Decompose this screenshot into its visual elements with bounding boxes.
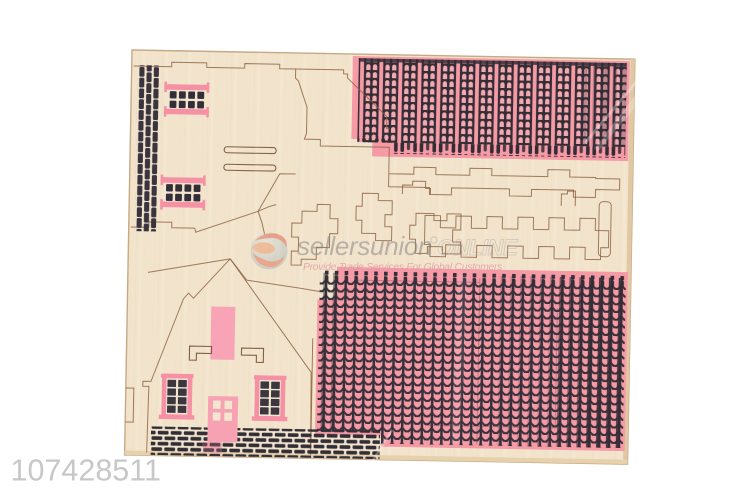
svg-text:Provide Trade Services For Glo: Provide Trade Services For Global Custom…: [303, 262, 502, 273]
svg-text:107428511: 107428511: [11, 454, 161, 488]
svg-text:ONLINE: ONLINE: [437, 235, 519, 260]
svg-text:sellersunion: sellersunion: [297, 231, 432, 261]
